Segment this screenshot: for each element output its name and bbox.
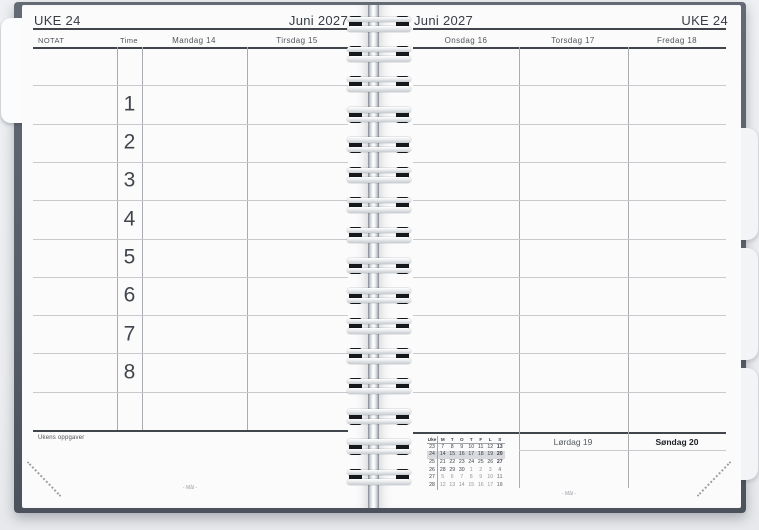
mini-cal-day: 3	[486, 467, 496, 475]
header-rule	[33, 47, 348, 49]
mini-cal-day: 11	[476, 444, 486, 452]
page-footer-left: - Mål -	[183, 485, 197, 491]
mini-cal-header-cell: T	[467, 436, 477, 444]
row-line	[33, 239, 348, 240]
spiral-coil	[347, 46, 411, 63]
column-divider	[628, 47, 629, 432]
title-rule	[33, 28, 348, 30]
mini-cal-week-number: 28	[427, 482, 438, 490]
row-line	[413, 239, 726, 240]
mini-cal-header-cell: L	[486, 436, 496, 444]
spiral-coil	[347, 167, 411, 184]
mini-cal-week-number: 25	[427, 459, 438, 467]
hour-label: 5	[117, 238, 142, 276]
tear-off-perforation-right	[697, 461, 732, 497]
mini-cal-day: 7	[457, 474, 467, 482]
weekly-tasks-label: Ukens oppgaver	[38, 435, 85, 441]
spiral-coil	[347, 318, 411, 335]
mini-cal-header-cell: S	[495, 436, 505, 444]
page-footer-right: - Mål -	[562, 491, 576, 497]
hour-label: 1	[117, 85, 142, 123]
mini-cal-week-number: 27	[427, 474, 438, 482]
mini-cal-header-cell: M	[438, 436, 448, 444]
mini-cal-day: 9	[457, 444, 467, 452]
column-header-monday: Mandag 14	[172, 36, 216, 45]
mini-cal-week-number: 23	[427, 444, 438, 452]
mini-cal-day: 7	[438, 444, 448, 452]
column-divider	[519, 432, 520, 488]
mini-cal-day: 30	[457, 467, 467, 475]
hour-label: 7	[117, 315, 142, 353]
mini-cal-day: 8	[467, 474, 477, 482]
mini-cal-day: 5	[438, 474, 448, 482]
column-header-thursday: Torsdag 17	[551, 36, 595, 45]
row-line	[33, 85, 348, 86]
mini-cal-day: 19	[486, 451, 496, 459]
week-label-left: UKE 24	[34, 13, 81, 28]
column-header-notat: NOTAT	[38, 36, 64, 45]
mini-cal-day: 15	[467, 482, 477, 490]
hour-label: 4	[117, 200, 142, 238]
column-header-tuesday: Tirsdag 15	[276, 36, 318, 45]
tear-off-perforation-left	[27, 461, 62, 497]
row-line	[33, 200, 348, 201]
mini-cal-day: 8	[448, 444, 458, 452]
spiral-coil	[347, 378, 411, 395]
column-header-time: Time	[120, 36, 138, 45]
right-page: Juni 2027 UKE 24 Onsdag 16 Torsdag 17 Fr…	[379, 5, 741, 508]
spiral-coil	[347, 408, 411, 425]
row-line	[413, 277, 726, 278]
row-line	[33, 353, 348, 354]
row-line	[413, 162, 726, 163]
mini-cal-header-cell: O	[457, 436, 467, 444]
mini-cal-day: 26	[486, 459, 496, 467]
mini-cal-day: 2	[476, 467, 486, 475]
mini-cal-header-cell: Uke	[427, 436, 438, 444]
mini-cal-day: 23	[457, 459, 467, 467]
mini-cal-day: 12	[486, 444, 496, 452]
column-divider	[628, 432, 629, 488]
hour-label: 8	[117, 353, 142, 391]
month-label-right: Juni 2027	[414, 13, 473, 28]
spiral-coil	[347, 287, 411, 304]
mini-cal-day: 1	[467, 467, 477, 475]
mini-cal-day: 13	[448, 482, 458, 490]
mini-cal-day: 11	[495, 474, 505, 482]
spiral-coil	[347, 136, 411, 153]
month-label-left: Juni 2027	[289, 13, 348, 28]
mini-cal-day: 17	[467, 451, 477, 459]
weekend-header-rule	[519, 450, 726, 451]
mini-cal-week-number: 24	[427, 451, 438, 459]
mini-cal-day: 29	[448, 467, 458, 475]
mini-cal-day: 24	[467, 459, 477, 467]
mini-cal-day: 18	[495, 482, 505, 490]
spiral-coil	[347, 106, 411, 123]
mini-cal-day: 17	[486, 482, 496, 490]
mini-cal-day: 27	[495, 459, 505, 467]
row-line	[413, 200, 726, 201]
mini-cal-header-cell: F	[476, 436, 486, 444]
row-line	[33, 162, 348, 163]
spiral-coil	[347, 227, 411, 244]
mini-cal-day: 15	[448, 451, 458, 459]
mini-cal-day: 6	[448, 474, 458, 482]
column-header-friday: Fredag 18	[657, 36, 697, 45]
row-line	[33, 392, 348, 393]
row-line	[33, 124, 348, 125]
hour-label: 3	[117, 162, 142, 200]
left-page: UKE 24 Juni 2027 NOTAT Time Mandag 14 Ti…	[22, 5, 368, 508]
mini-cal-day: 14	[457, 482, 467, 490]
row-line	[33, 277, 348, 278]
title-rule	[413, 28, 726, 30]
row-line	[413, 85, 726, 86]
spiral-coil	[347, 197, 411, 214]
spiral-coil	[347, 16, 411, 33]
spiral-coil	[347, 348, 411, 365]
mini-cal-day: 10	[486, 474, 496, 482]
row-line	[33, 315, 348, 316]
sunday-header: Søndag 20	[656, 437, 699, 447]
mini-cal-day: 13	[495, 444, 505, 452]
mini-cal-day: 16	[476, 482, 486, 490]
header-rule	[413, 47, 726, 49]
grid-bottom-rule	[413, 432, 726, 434]
column-divider	[519, 47, 520, 432]
mini-cal-day: 21	[438, 459, 448, 467]
hour-label: 2	[117, 124, 142, 162]
mini-cal-day: 4	[495, 467, 505, 475]
spiral-coil	[347, 469, 411, 486]
grid-bottom-rule	[33, 430, 348, 432]
row-line	[413, 124, 726, 125]
mini-cal-day: 16	[457, 451, 467, 459]
mini-cal-day: 25	[476, 459, 486, 467]
mini-cal-week-number: 26	[427, 467, 438, 475]
mini-cal-day: 14	[438, 451, 448, 459]
row-line	[413, 315, 726, 316]
column-header-wednesday: Onsdag 16	[445, 36, 488, 45]
spiral-coil	[347, 76, 411, 93]
row-line	[413, 392, 726, 393]
spiral-coil	[347, 438, 411, 455]
mini-cal-day: 10	[467, 444, 477, 452]
hour-label: 6	[117, 277, 142, 315]
saturday-header: Lørdag 19	[554, 437, 593, 447]
spiral-coil	[347, 257, 411, 274]
planner-spread: UKE 24 Juni 2027 NOTAT Time Mandag 14 Ti…	[0, 0, 759, 530]
mini-cal-day: 18	[476, 451, 486, 459]
mini-cal-day: 9	[476, 474, 486, 482]
row-line	[413, 353, 726, 354]
mini-cal-day: 20	[495, 451, 505, 459]
mini-cal-day: 28	[438, 467, 448, 475]
mini-calendar: UkeMTOTFLS237891011121324141516171819202…	[427, 436, 505, 490]
week-label-right: UKE 24	[681, 13, 728, 28]
mini-cal-header-cell: T	[448, 436, 458, 444]
mini-cal-day: 22	[448, 459, 458, 467]
mini-cal-day: 12	[438, 482, 448, 490]
